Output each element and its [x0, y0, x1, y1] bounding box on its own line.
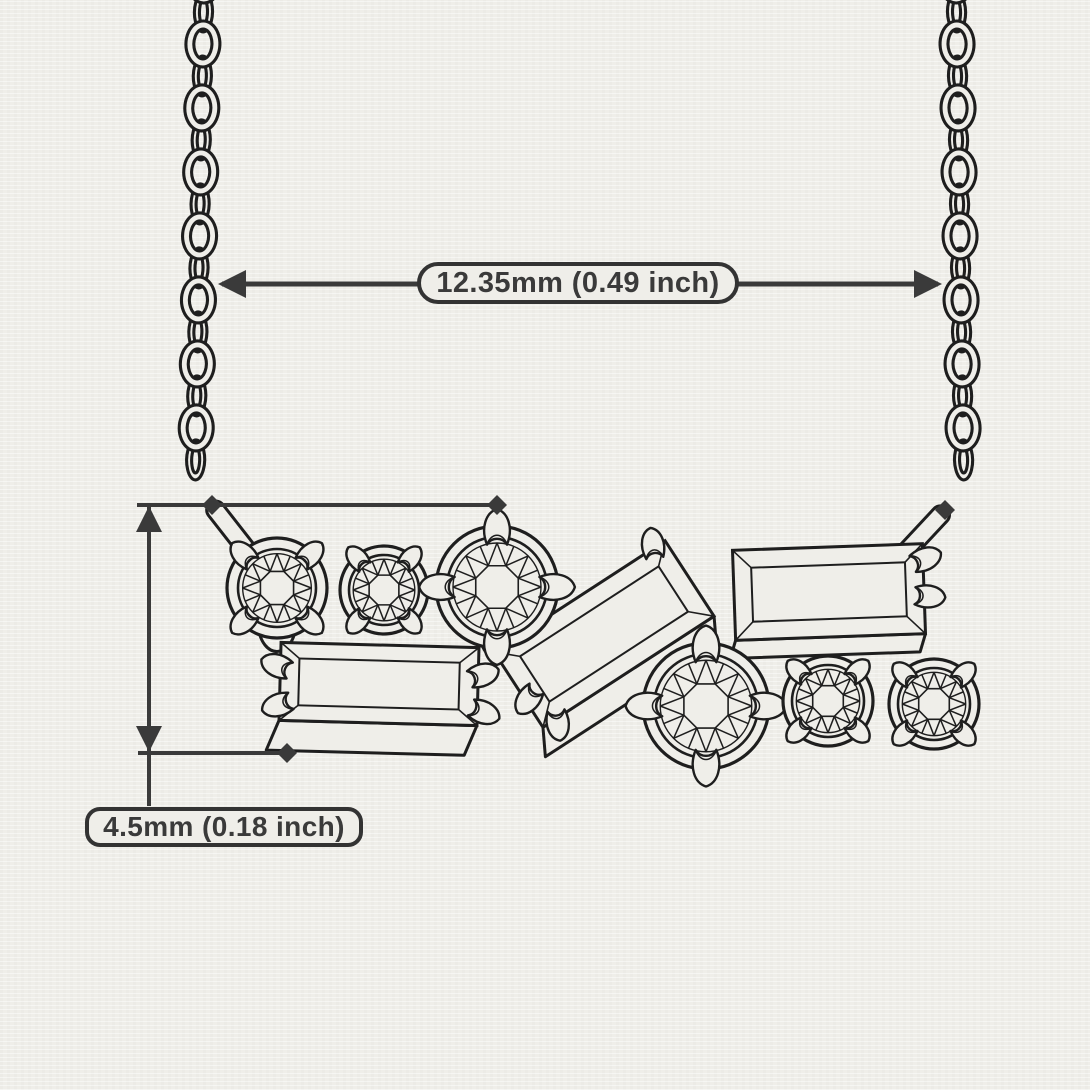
necklace-technical-drawing [0, 0, 1090, 1090]
round-stone-1 [225, 536, 330, 641]
height-dimension-label: 4.5mm (0.18 inch) [85, 807, 363, 847]
chain-right [939, 0, 981, 480]
arrow-down-icon [136, 726, 162, 752]
sketch-canvas: 12.35mm (0.49 inch) 4.5mm (0.18 inch) [0, 0, 1090, 1090]
round-stone-2 [340, 541, 428, 638]
pendant [203, 497, 981, 786]
baguette-top-right [726, 542, 948, 658]
round-stone-6 [887, 657, 981, 751]
arrow-up-icon [136, 506, 162, 532]
baguette-bottom-left [255, 642, 505, 756]
chain-left [178, 0, 221, 480]
round-stone-5 [781, 654, 875, 748]
arrow-left-icon [218, 270, 246, 298]
arrow-right-icon [914, 270, 942, 298]
width-dimension-label: 12.35mm (0.49 inch) [417, 262, 739, 304]
